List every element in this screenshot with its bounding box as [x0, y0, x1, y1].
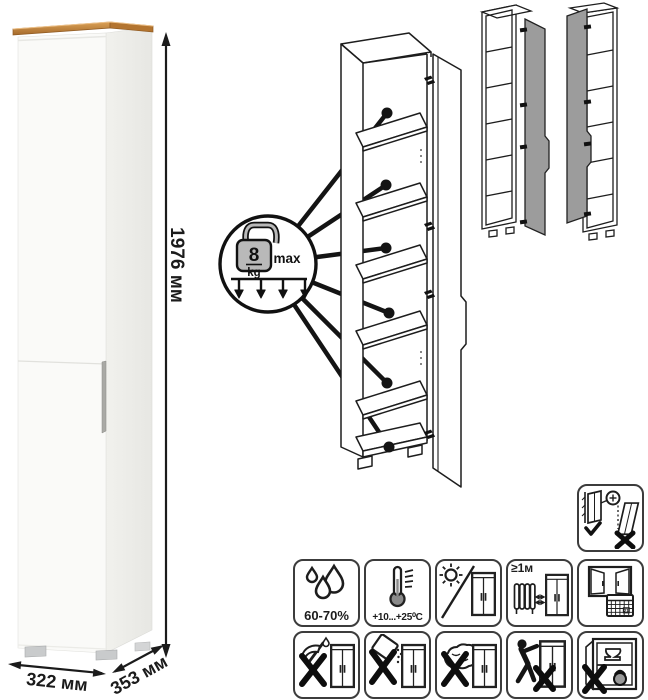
sun-icon: [446, 570, 457, 581]
tile-ventilation: 21: [577, 559, 644, 627]
max-load-badge: 8 kg max: [220, 216, 316, 312]
tipping-cabinet: [618, 500, 639, 537]
cabinet-foot: [25, 646, 46, 657]
height-dimension-label: 1976 мм: [165, 210, 187, 320]
wardrobe-glyph: [402, 645, 425, 687]
height-dimension-arrow: [162, 32, 171, 658]
open-door-drawing: [433, 54, 466, 487]
load-unit: kg: [247, 267, 260, 279]
anvil-icon: [605, 649, 620, 660]
gray-door-right: [525, 19, 549, 235]
product-dimension-sheet: 8 kg max: [0, 0, 648, 700]
radiator-icon: [515, 584, 535, 609]
wardrobe-glyph: [472, 573, 495, 615]
tile-humidity: 60-70%: [293, 559, 360, 627]
no-pushing-when-moving-icon: [509, 634, 570, 696]
tile-temperature: +10...+25⁰C: [364, 559, 431, 627]
calendar-icon: 21: [607, 595, 633, 616]
cabinet-front-face: [18, 33, 106, 653]
spacing-arrows: [536, 595, 544, 604]
tile-anchor-to-wall: [577, 484, 644, 552]
door-handle-groove: [102, 361, 106, 433]
tile-heat-distance: ≥1м: [506, 559, 573, 627]
distance-label: ≥1м: [511, 561, 533, 575]
variant-door-left: [567, 3, 617, 240]
calendar-day: 21: [624, 608, 629, 613]
load-max-label: max: [273, 251, 301, 266]
load-value: 8: [249, 245, 260, 266]
exploded-shelf-diagram: 8 kg max: [220, 33, 466, 487]
tile-no-abrasives: [364, 631, 431, 699]
no-abrasive-cleaners-icon: [367, 634, 428, 696]
wardrobe-glyph: [331, 645, 354, 687]
tile-no-pushing: [506, 631, 573, 699]
anchor-to-wall-icon: [580, 487, 641, 549]
no-overloading-icon: [580, 634, 641, 696]
tile-no-sharp-tools: [293, 631, 360, 699]
no-wet-cloth-icon: [438, 634, 499, 696]
wardrobe-glyph: [546, 575, 568, 615]
wardrobe-glyph: [473, 645, 496, 687]
cabinet-side-face: [106, 27, 152, 653]
cabinet-photo: [13, 22, 153, 660]
x-mark: [302, 656, 324, 684]
cabinet-foot: [96, 650, 117, 660]
ventilation-calendar-icon: 21: [580, 562, 641, 624]
check-mark: [586, 523, 600, 534]
no-sharp-tools-icon: [296, 634, 357, 696]
drop-icon: [323, 638, 329, 647]
no-direct-sunlight-icon: [438, 562, 499, 624]
cabinet-top-board: [13, 22, 110, 35]
gray-door-left: [567, 9, 591, 223]
humidity-label: 60-70%: [295, 608, 358, 623]
tile-no-sunlight: [435, 559, 502, 627]
cabinet-foot: [135, 642, 150, 651]
variant-door-right: [482, 5, 549, 237]
person-icon: [517, 639, 537, 681]
tile-no-overloading: [577, 631, 644, 699]
kettlebell-icon: [614, 673, 626, 685]
tile-no-wet-cloth: [435, 631, 502, 699]
temperature-label: +10...+25⁰C: [366, 612, 429, 623]
